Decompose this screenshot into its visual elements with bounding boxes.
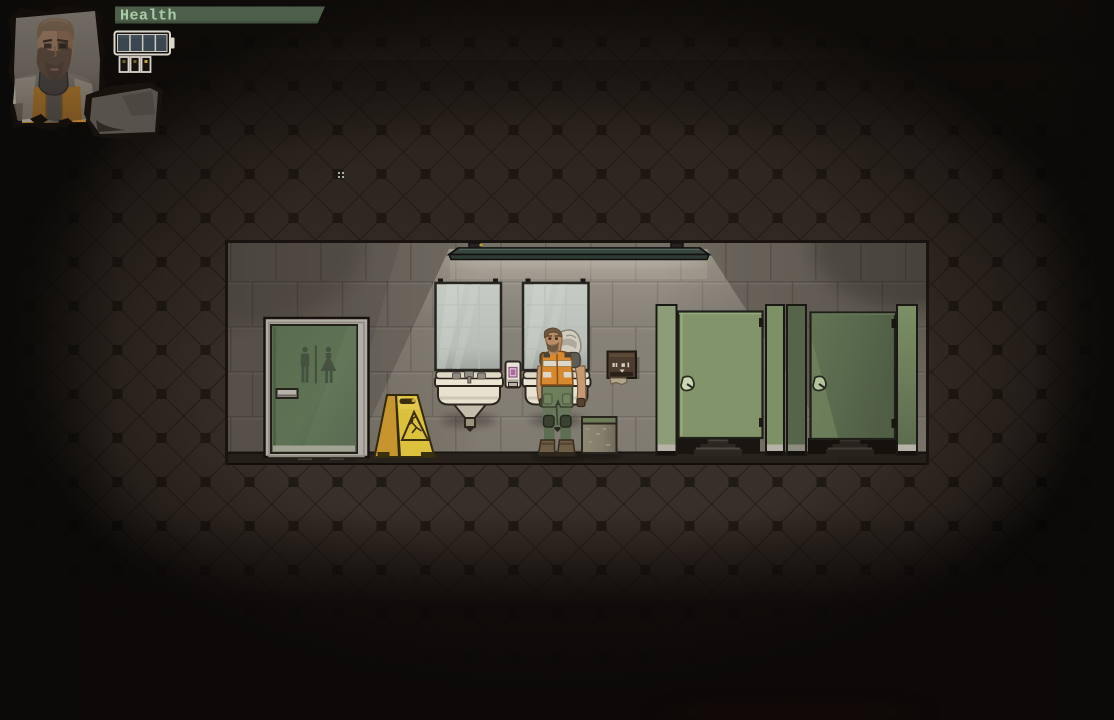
svg-text:Health: Health [120,8,177,25]
